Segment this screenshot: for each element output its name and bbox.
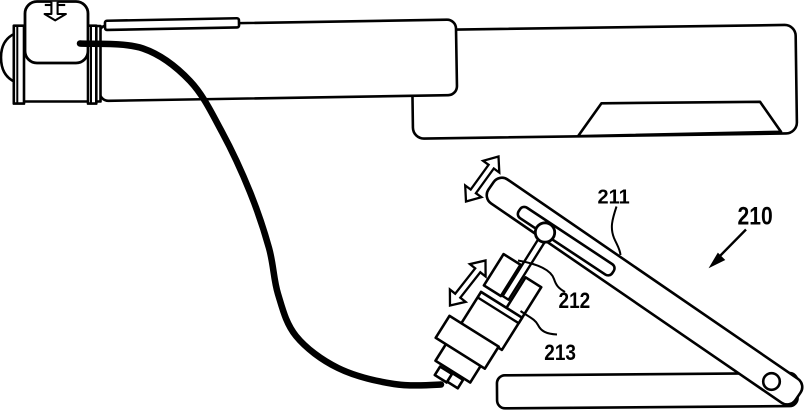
svg-text:212: 212 [559,288,591,313]
svg-text:213: 213 [544,340,576,365]
svg-text:210: 210 [738,203,773,231]
svg-text:211: 211 [598,186,630,209]
